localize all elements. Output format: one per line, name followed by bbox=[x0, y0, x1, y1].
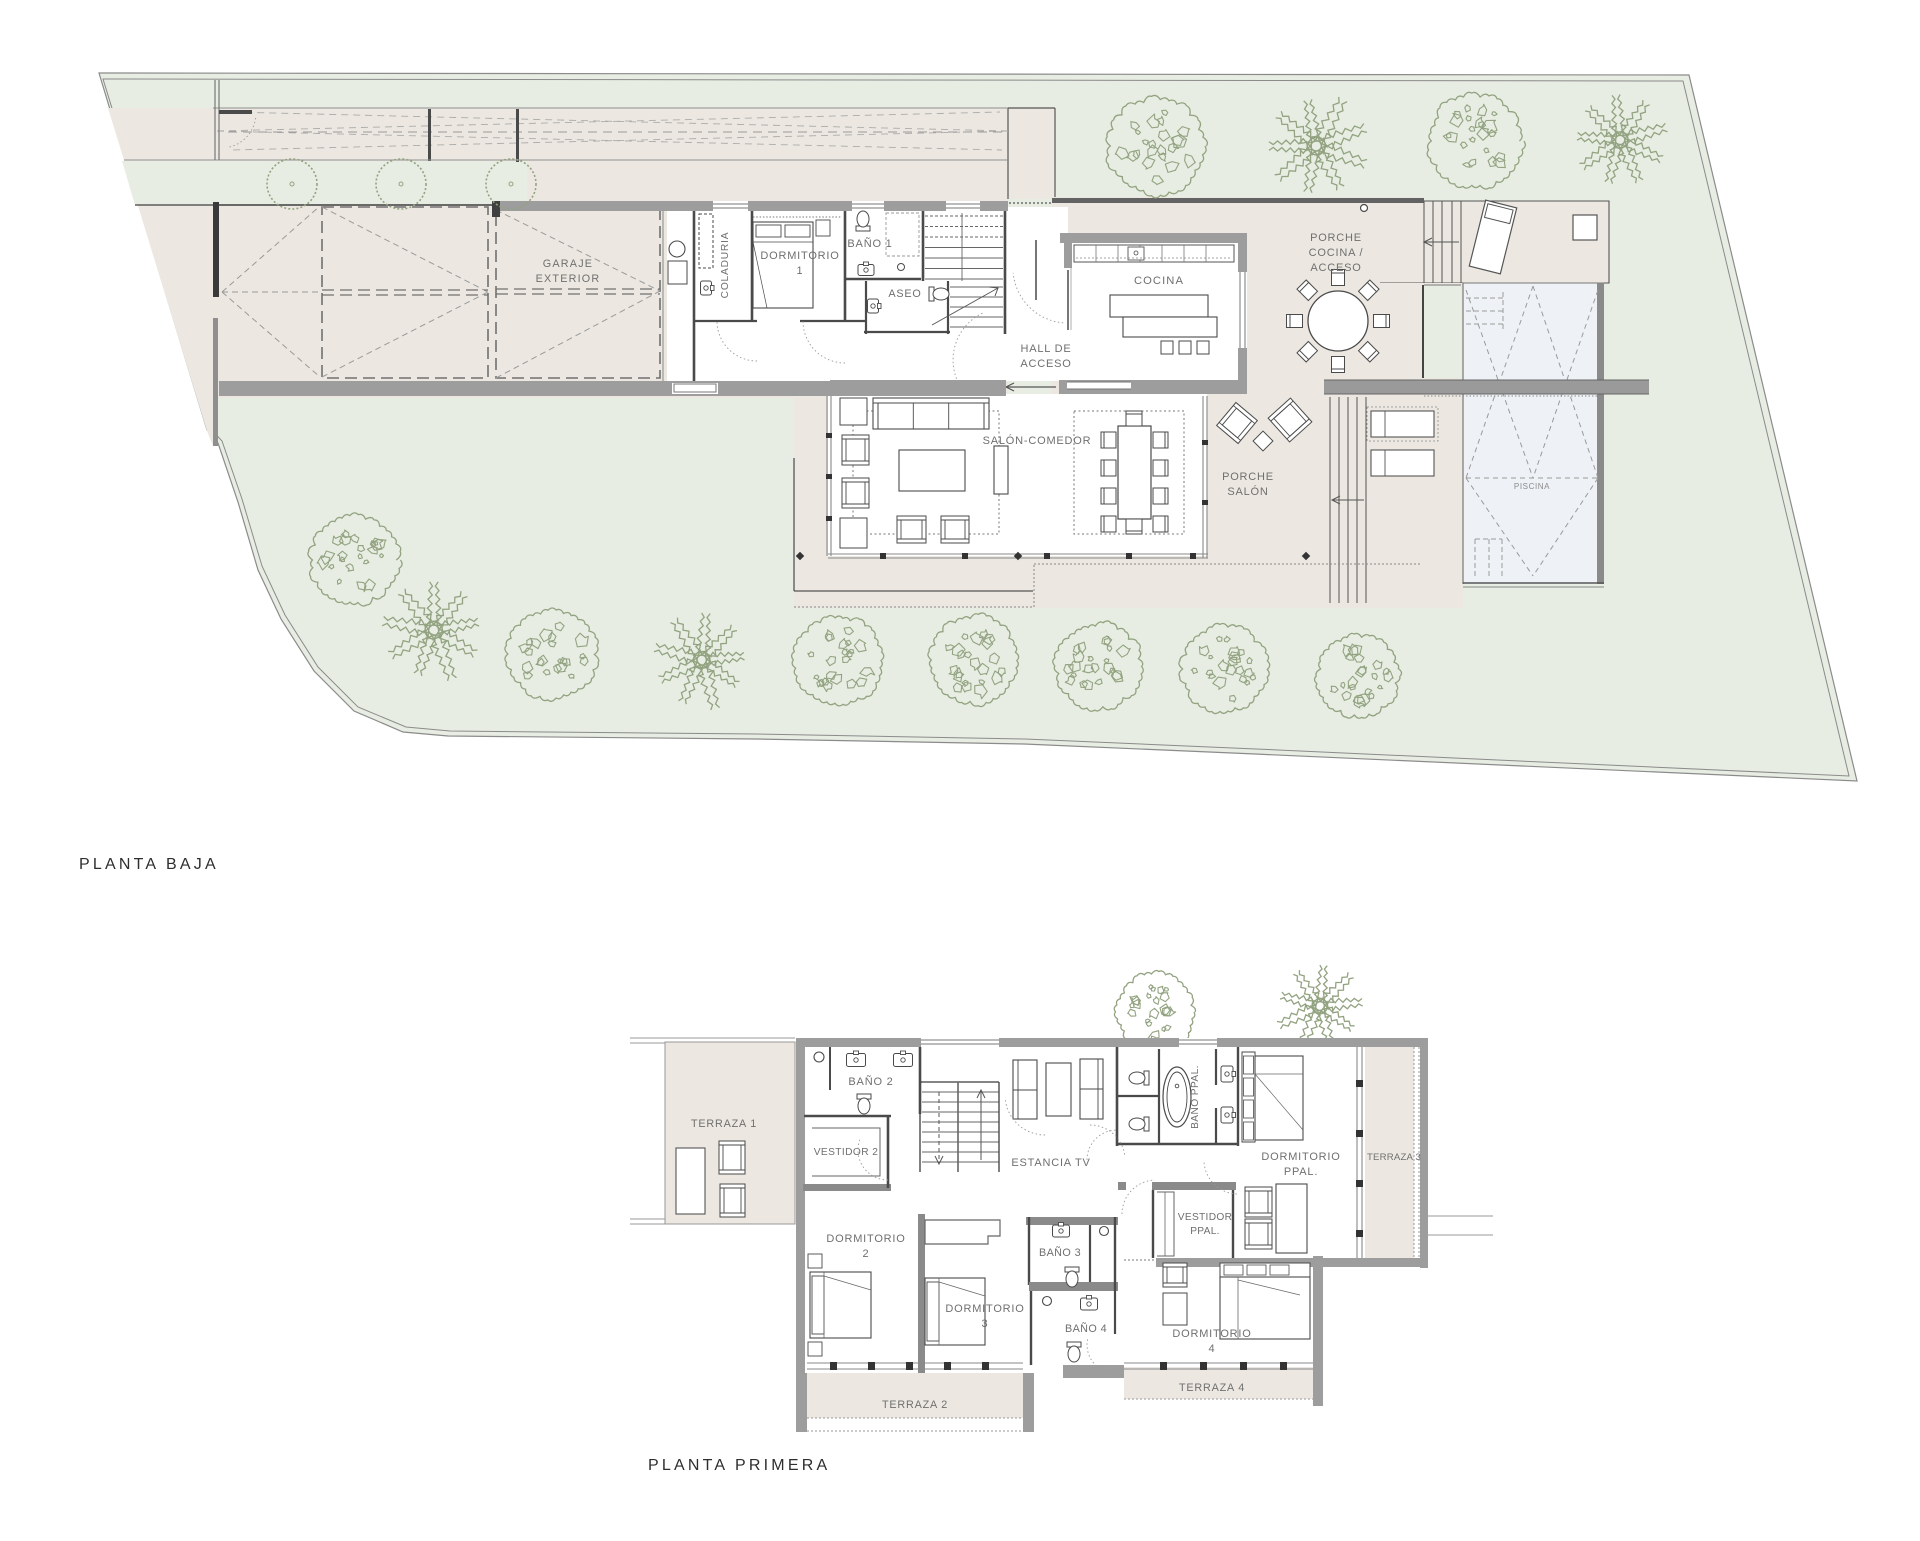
svg-text:BAÑO 4: BAÑO 4 bbox=[1065, 1322, 1107, 1335]
svg-text:HALL DE: HALL DE bbox=[1020, 343, 1071, 355]
svg-text:PLANTA BAJA: PLANTA BAJA bbox=[79, 856, 219, 873]
svg-text:PORCHE: PORCHE bbox=[1310, 232, 1362, 244]
svg-text:DORMITORIO: DORMITORIO bbox=[760, 250, 839, 262]
svg-text:3: 3 bbox=[982, 1318, 989, 1330]
svg-text:ACCESO: ACCESO bbox=[1310, 262, 1361, 274]
svg-text:BAÑO 1: BAÑO 1 bbox=[847, 237, 892, 250]
svg-text:2: 2 bbox=[863, 1248, 870, 1260]
svg-text:DORMITORIO: DORMITORIO bbox=[1172, 1328, 1251, 1340]
svg-text:COLADURIA: COLADURIA bbox=[720, 232, 731, 299]
svg-text:PPAL.: PPAL. bbox=[1190, 1226, 1220, 1237]
svg-text:PPAL.: PPAL. bbox=[1284, 1166, 1318, 1178]
svg-text:BAÑO 3: BAÑO 3 bbox=[1039, 1246, 1081, 1259]
svg-text:TERRAZA 1: TERRAZA 1 bbox=[691, 1118, 757, 1130]
svg-text:PORCHE: PORCHE bbox=[1222, 471, 1274, 483]
svg-text:1: 1 bbox=[797, 265, 804, 277]
svg-text:EXTERIOR: EXTERIOR bbox=[536, 273, 601, 285]
svg-text:BAÑO 2: BAÑO 2 bbox=[848, 1075, 893, 1088]
svg-text:DORMITORIO: DORMITORIO bbox=[826, 1233, 905, 1245]
svg-text:4: 4 bbox=[1209, 1343, 1216, 1355]
svg-text:PLANTA PRIMERA: PLANTA PRIMERA bbox=[648, 1457, 830, 1474]
svg-text:TERRAZA 3: TERRAZA 3 bbox=[1367, 1152, 1421, 1163]
svg-text:DORMITORIO: DORMITORIO bbox=[945, 1303, 1024, 1315]
svg-text:BAÑO PPAL.: BAÑO PPAL. bbox=[1188, 1065, 1201, 1129]
svg-text:TERRAZA 4: TERRAZA 4 bbox=[1179, 1382, 1245, 1394]
svg-text:COCINA /: COCINA / bbox=[1309, 247, 1364, 259]
svg-text:PISCINA: PISCINA bbox=[1514, 482, 1550, 491]
svg-text:ASEO: ASEO bbox=[888, 288, 921, 300]
svg-text:VESTIDOR 2: VESTIDOR 2 bbox=[814, 1147, 879, 1158]
svg-text:VESTIDOR: VESTIDOR bbox=[1178, 1212, 1232, 1223]
svg-text:TERRAZA 2: TERRAZA 2 bbox=[882, 1399, 948, 1411]
svg-text:SALÓN-COMEDOR: SALÓN-COMEDOR bbox=[983, 434, 1092, 447]
svg-text:GARAJE: GARAJE bbox=[543, 258, 593, 270]
svg-text:ACCESO: ACCESO bbox=[1020, 358, 1071, 370]
svg-text:DORMITORIO: DORMITORIO bbox=[1261, 1151, 1340, 1163]
svg-text:COCINA: COCINA bbox=[1134, 275, 1184, 287]
svg-text:ESTANCIA TV: ESTANCIA TV bbox=[1011, 1157, 1090, 1169]
svg-text:SALÓN: SALÓN bbox=[1227, 485, 1268, 498]
